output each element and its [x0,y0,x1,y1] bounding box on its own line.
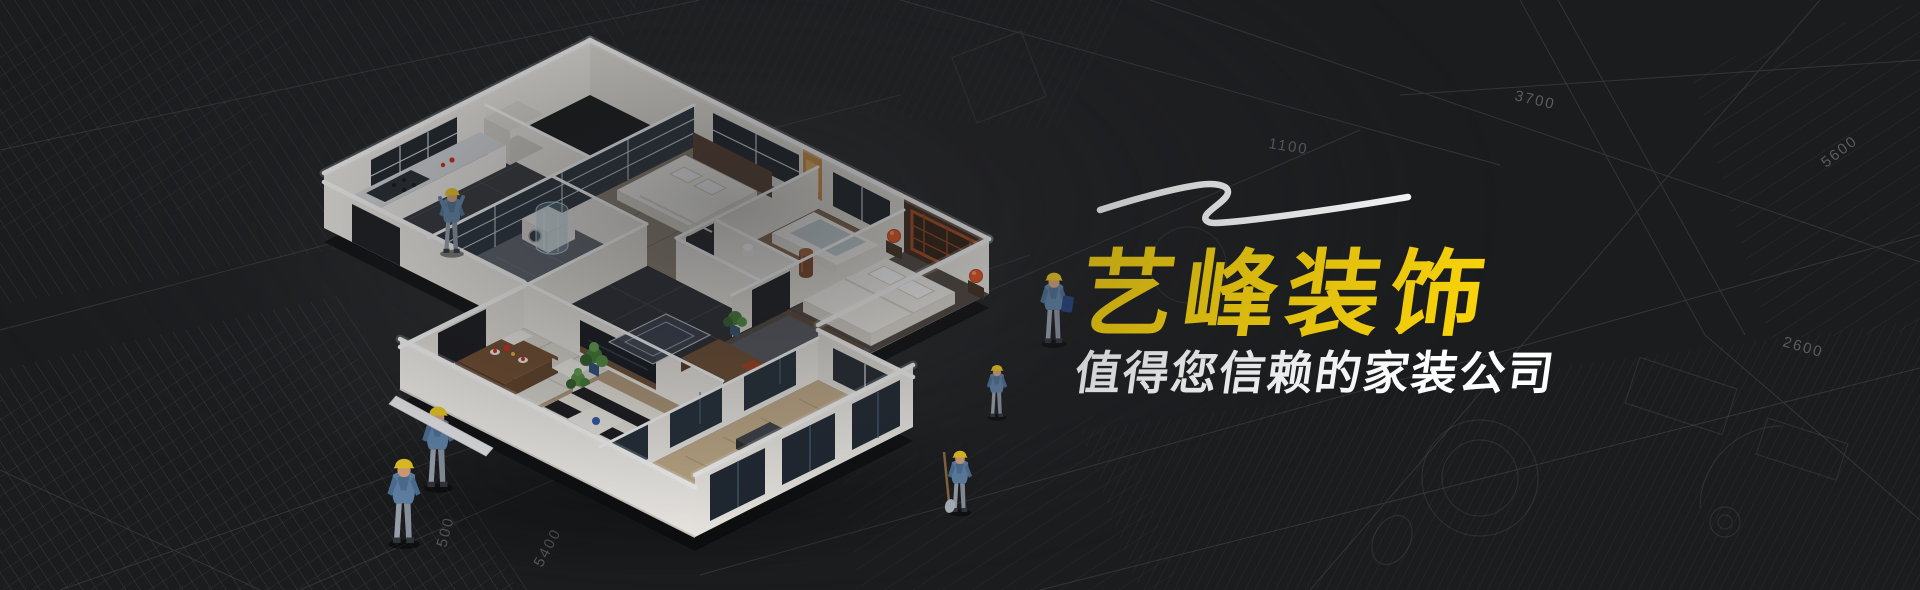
company-title: 艺峰装饰 [1074,248,1499,342]
decoration-company-banner: 3700 5600 2600 1100 5400 500 [0,0,1920,590]
apartment-model-scene [0,0,1920,590]
company-tagline: 值得您信赖的家装公司 [1072,350,1558,396]
worker-bag [1061,295,1074,312]
swoosh-stroke [1100,184,1408,223]
